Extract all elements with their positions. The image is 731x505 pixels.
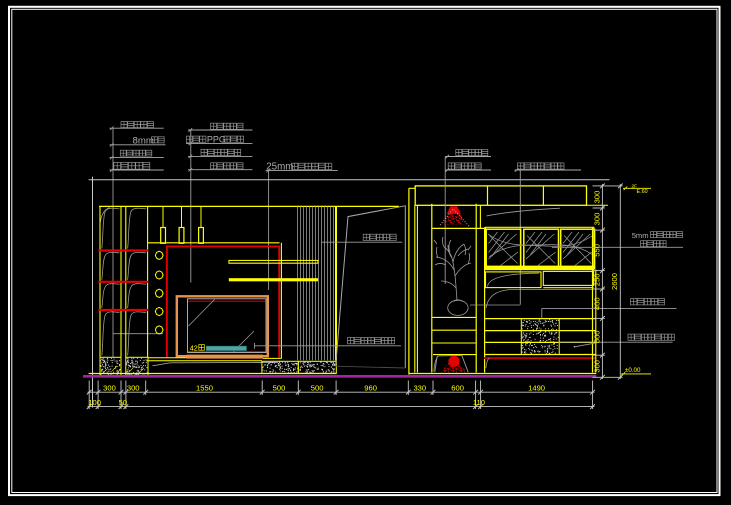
svg-text:300: 300 [127,383,140,392]
svg-text:960: 960 [364,383,377,392]
svg-text:300: 300 [103,383,116,392]
svg-text:50: 50 [119,398,127,407]
svg-text:2600: 2600 [610,273,619,290]
svg-text:300: 300 [592,213,601,226]
svg-text:±0.00: ±0.00 [625,367,641,374]
svg-text:1550: 1550 [196,383,213,392]
svg-text:300: 300 [592,360,601,373]
svg-text:110: 110 [473,398,485,407]
svg-text:500: 500 [311,383,324,392]
svg-text:1490: 1490 [528,383,545,392]
svg-text:5mm: 5mm [632,231,649,240]
svg-text:300: 300 [592,191,601,204]
svg-text:500: 500 [592,330,601,343]
svg-text:42: 42 [190,344,198,353]
svg-text:100: 100 [88,398,101,407]
svg-text:550: 550 [592,244,601,257]
svg-text:330: 330 [413,383,426,392]
svg-text:PPG: PPG [207,135,226,145]
svg-text:500: 500 [273,383,286,392]
svg-text:250: 250 [592,273,601,286]
svg-text:8mm: 8mm [133,136,154,147]
svg-text:25mm: 25mm [266,162,293,173]
svg-text:600: 600 [451,383,464,392]
svg-text:E.60: E.60 [637,189,648,195]
svg-text:400: 400 [592,297,601,310]
